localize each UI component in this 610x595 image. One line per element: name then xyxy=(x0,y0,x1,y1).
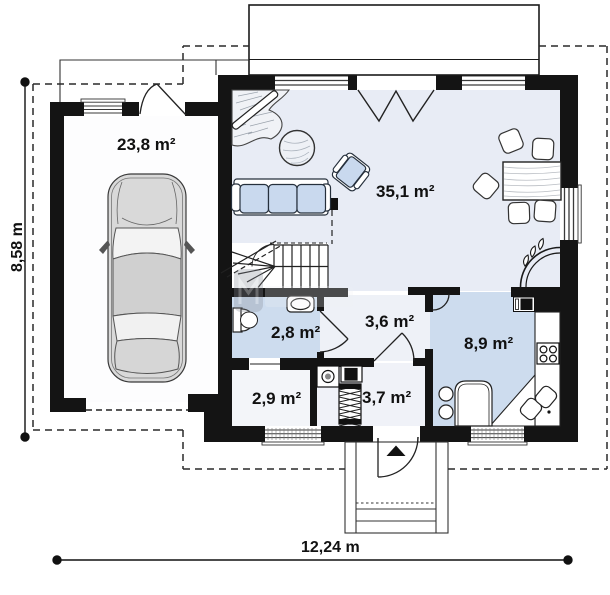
svg-text:23,8 m²: 23,8 m² xyxy=(117,135,176,154)
svg-text:8,9 m²: 8,9 m² xyxy=(464,334,513,353)
svg-text:3,6 m²: 3,6 m² xyxy=(365,312,414,331)
svg-text:2,8 m²: 2,8 m² xyxy=(271,323,320,342)
svg-text:35,1 m²: 35,1 m² xyxy=(376,182,435,201)
svg-text:2,9 m²: 2,9 m² xyxy=(252,389,301,408)
svg-text:8,58 m: 8,58 m xyxy=(9,222,26,272)
svg-text:3,7 m²: 3,7 m² xyxy=(362,388,411,407)
svg-text:12,24 m: 12,24 m xyxy=(301,539,360,556)
